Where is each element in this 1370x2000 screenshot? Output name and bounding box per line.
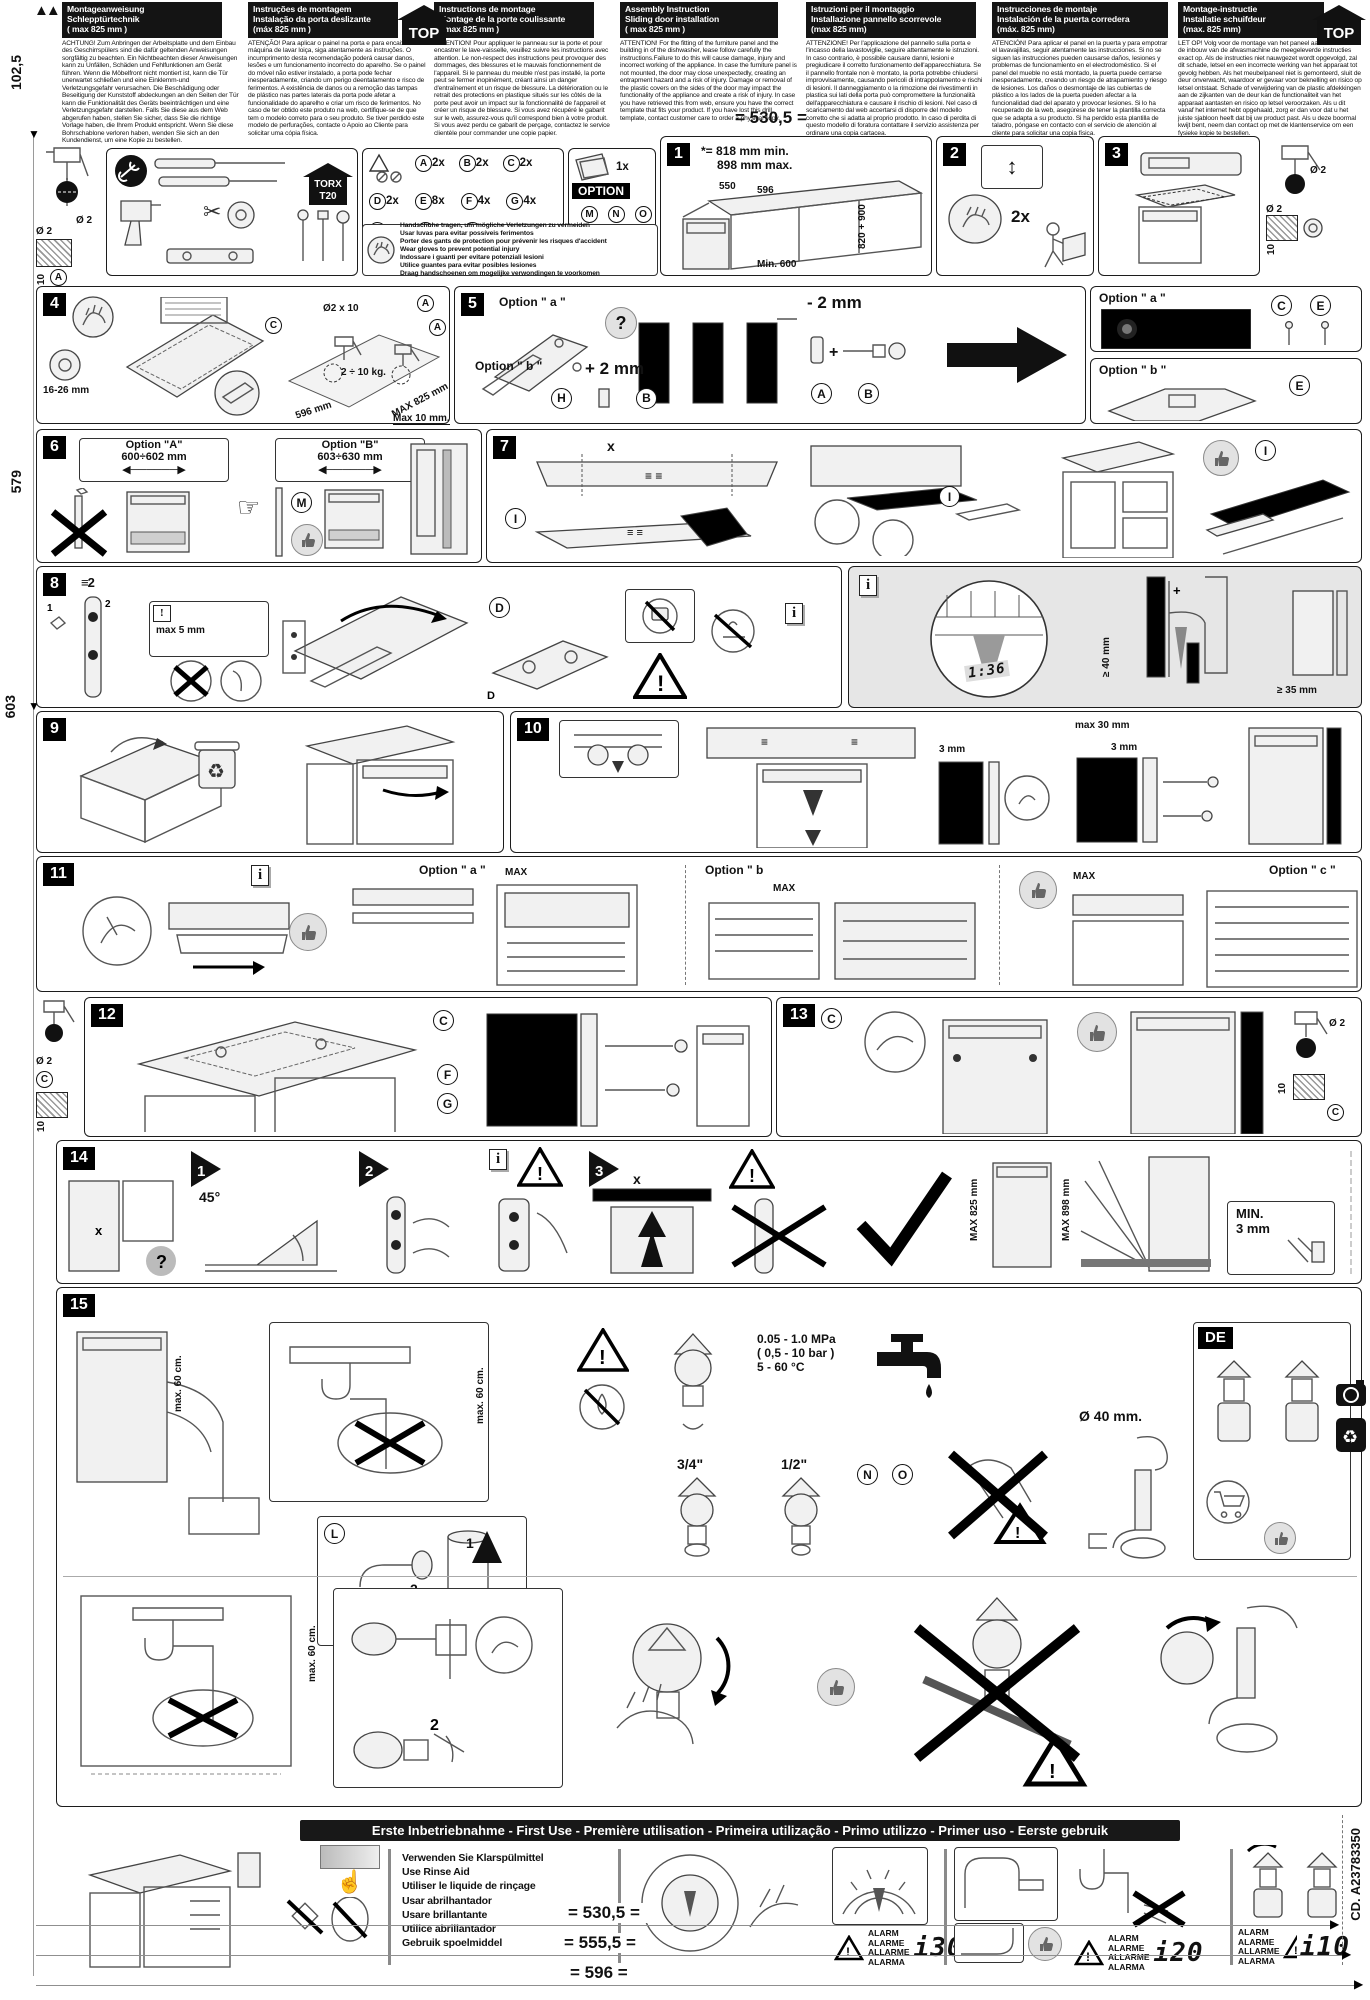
dim-phi2: Ø 2 bbox=[1329, 1018, 1345, 1029]
svg-text:3: 3 bbox=[595, 1163, 603, 1180]
option-b-part: E bbox=[1289, 375, 1310, 396]
hook-screw-illustration bbox=[357, 1193, 477, 1277]
dim-arrow: ▶ bbox=[1330, 1918, 1339, 1930]
part-item-d: D2x bbox=[369, 191, 399, 210]
hand-tap-open bbox=[587, 1598, 807, 1788]
drill-icon bbox=[1285, 1006, 1329, 1064]
tools-illustration: ✂ TORX T20 bbox=[107, 149, 355, 274]
fixing-a2: A bbox=[429, 317, 446, 336]
warning-triangle-icon: ! bbox=[729, 1149, 775, 1189]
aquastop-taps bbox=[1194, 1353, 1344, 1473]
dim-102-5: 102,5 bbox=[8, 55, 24, 90]
under-sink-illustration bbox=[73, 1588, 303, 1788]
door-panel-mounting bbox=[281, 581, 481, 703]
part-letter-f: F bbox=[437, 1064, 458, 1085]
step-number: 15 bbox=[63, 1294, 95, 1317]
divider bbox=[1230, 1849, 1233, 1965]
rails-option-b bbox=[705, 895, 985, 989]
step-number: 6 bbox=[43, 436, 66, 459]
rinse-fill-illustration bbox=[70, 1845, 270, 1973]
svg-text:TOP: TOP bbox=[1324, 25, 1355, 42]
dim-ge40: ≥ 40 mm bbox=[1101, 619, 1112, 677]
part-qty: 2x bbox=[476, 157, 489, 169]
band-divider bbox=[63, 1576, 1357, 1577]
part-letter-i: I bbox=[1255, 440, 1276, 461]
pointing-hand-icon: ☝ bbox=[336, 1869, 380, 1895]
gloves-icon bbox=[71, 295, 115, 339]
part-letter-h: H bbox=[551, 388, 572, 409]
dim-phi2: Ø 2 bbox=[1310, 165, 1366, 176]
step-number: 9 bbox=[43, 718, 66, 741]
svg-text:x: x bbox=[95, 1223, 103, 1238]
dim-plus-2mm: + 2 mm bbox=[585, 359, 644, 379]
substep-3-arrow: 3 bbox=[587, 1149, 621, 1189]
step-8-info-panel: i 1:36 + ≥ 40 mm ≥ 35 mm bbox=[848, 566, 1362, 708]
margin-dims-12: Ø 2 C 10 bbox=[36, 997, 80, 1137]
step-6: 6 Option "A" 600÷602 mm ◀──────▶ Option … bbox=[36, 429, 482, 563]
option-b-label: Option " b bbox=[705, 863, 763, 877]
part-item-c: C2x bbox=[503, 153, 533, 172]
siphon-alarm-panel: ! ALARM ALARME ALLARME ALARMA i20 bbox=[1074, 1845, 1224, 1972]
svg-text:≡: ≡ bbox=[761, 735, 768, 749]
warning-triangle-icon: ! bbox=[577, 1328, 629, 1372]
dim-phi2b: Ø 2 bbox=[1266, 204, 1366, 215]
step-13: 13 C Ø 2 10 C bbox=[776, 997, 1362, 1137]
step-5-option-b-panel: Option " b " E bbox=[1090, 358, 1362, 424]
svg-text:✂: ✂ bbox=[203, 199, 221, 224]
dim-arrow: ▶ bbox=[1354, 1978, 1363, 1990]
wrench-tap-wrong: ! bbox=[877, 1588, 1117, 1788]
panel-sketch bbox=[1285, 587, 1355, 679]
svg-text:1: 1 bbox=[197, 1163, 205, 1180]
bracket-c-callout: C bbox=[433, 1010, 454, 1031]
divider bbox=[999, 865, 1000, 985]
dishwasher-with-panel bbox=[1125, 1006, 1275, 1134]
door-side-strips bbox=[403, 440, 477, 558]
part-l-callout: L bbox=[324, 1523, 345, 1544]
glove-pt: Usar luvas para evitar possíveis ferimen… bbox=[400, 230, 607, 238]
no-solvent-icon bbox=[369, 153, 403, 183]
max-height: 898 mm max. bbox=[717, 158, 792, 172]
strip-m-callout: M bbox=[291, 492, 312, 513]
hand-circle-icon bbox=[947, 193, 1007, 247]
part-letter-l: L bbox=[324, 1523, 345, 1544]
step-number: 10 bbox=[517, 718, 549, 741]
no-sit-icon bbox=[705, 607, 761, 655]
warning-triangle-icon: ! bbox=[633, 653, 687, 699]
step-number: 3 bbox=[1105, 143, 1128, 166]
black-tap-icon bbox=[867, 1322, 947, 1402]
part-letter-c: C bbox=[36, 1071, 53, 1088]
standpipe-illustration bbox=[1077, 1430, 1187, 1560]
dim-max898: MAX 898 mm bbox=[1061, 1171, 1072, 1241]
dim-bottom-596: = 596 = bbox=[562, 1963, 636, 1983]
step-number: 14 bbox=[63, 1147, 95, 1170]
alarm-es: ALARMA bbox=[1238, 1957, 1280, 1967]
min-value: 3 mm bbox=[1236, 1221, 1270, 1236]
svg-text:D: D bbox=[487, 690, 495, 702]
title-line: (max 825 mm) bbox=[811, 25, 971, 35]
thumbs-up-icon bbox=[1019, 871, 1057, 909]
step-number: 2 bbox=[943, 143, 966, 166]
lang-title-pt: Instruções de montagem Instalação da por… bbox=[248, 2, 398, 38]
lang-title-es: Instrucciones de montaje Instalación de … bbox=[992, 2, 1168, 38]
recycle-icon: ♻ bbox=[1336, 1418, 1366, 1452]
info-icon: i bbox=[251, 865, 269, 886]
info-icon: i bbox=[785, 603, 803, 624]
alarm-words: ALARM ALARME ALLARME ALARMA bbox=[1108, 1934, 1150, 1972]
no-plug-panel bbox=[625, 589, 695, 643]
option-a-parts: C E bbox=[1271, 295, 1331, 316]
panel-grain bbox=[1101, 309, 1251, 349]
body-text-pt: ATENÇÃO! Para aplicar o painel na porta … bbox=[248, 40, 426, 138]
alarm-words: ALARM ALARME ALLARME ALARMA bbox=[868, 1929, 910, 1967]
warning-triangle-icon: ! bbox=[1074, 1940, 1104, 1966]
part-letter-m: M bbox=[291, 492, 312, 513]
template-taping-illustration bbox=[117, 297, 267, 417]
dim-phi2: Ø 2 bbox=[76, 215, 102, 226]
alarm-es: ALARMA bbox=[868, 1958, 910, 1968]
option-c-label: Option " c " bbox=[1269, 863, 1336, 877]
lang-title-de: Montageanweisung Schlepptürtechnik ( max… bbox=[62, 2, 222, 38]
bracket-diagram bbox=[1105, 381, 1265, 421]
template-on-top-illustration bbox=[1127, 147, 1253, 267]
dim-603: 603 bbox=[2, 695, 18, 718]
error-code-i20: i20 bbox=[1154, 1938, 1204, 1968]
lang-title-en: Assembly Instruction Sliding door instal… bbox=[620, 2, 778, 38]
part-qty: 4x bbox=[523, 195, 536, 207]
part-letter: O bbox=[635, 206, 652, 223]
glove-nl: Draag handschoenen om mogelijke verwondi… bbox=[400, 270, 607, 278]
lang-col-it: Istruzioni per il montaggio Installazion… bbox=[806, 2, 984, 137]
part-letter-c: C bbox=[265, 317, 282, 334]
warning-i: ! bbox=[153, 605, 171, 622]
svg-text:!: ! bbox=[657, 671, 664, 696]
lang-col-en: Assembly Instruction Sliding door instal… bbox=[620, 2, 798, 122]
dim-bottom-530-5: = 530,5 = bbox=[560, 1903, 648, 1923]
pressure-mpa: 0.05 - 1.0 MPa bbox=[757, 1332, 836, 1346]
door-open-illustration bbox=[1079, 1151, 1219, 1277]
lang-col-fr: Instructions de montage Montage de la po… bbox=[434, 2, 612, 137]
svg-text:TOP: TOP bbox=[409, 25, 440, 42]
cart-icon bbox=[1202, 1478, 1258, 1528]
svg-text:1: 1 bbox=[47, 603, 53, 614]
divider bbox=[944, 1849, 947, 1965]
option-B-label: Option "B" bbox=[276, 439, 424, 451]
wrong-hook-detail bbox=[161, 659, 271, 703]
dishwasher-side-view bbox=[1241, 722, 1351, 848]
thumbs-up-icon bbox=[291, 524, 323, 556]
step-number: 12 bbox=[91, 1004, 123, 1027]
dim-596: 596 bbox=[757, 185, 774, 196]
final-tap-open bbox=[1147, 1598, 1347, 1788]
part-letter: C bbox=[503, 155, 520, 172]
lang-title-it: Istruzioni per il montaggio Installazion… bbox=[806, 2, 976, 38]
step-15: 15 max. 60 cm. max. 60 cm. L 1 bbox=[56, 1287, 1362, 1807]
glove-warning-lines: Handschuhe tragen, um mögliche Verletzun… bbox=[400, 222, 607, 277]
de-panel: DE bbox=[1193, 1322, 1351, 1560]
door-fixing-detail: D bbox=[485, 623, 615, 703]
step1-height-note: *= 818 mm min. 898 mm max. bbox=[701, 144, 792, 172]
part-letter-c: C bbox=[1327, 1104, 1344, 1121]
sink-panel bbox=[269, 1322, 489, 1502]
svg-text:2: 2 bbox=[430, 1717, 439, 1734]
dim-bottom-555-5: = 555,5 = bbox=[556, 1933, 644, 1953]
option-a-label: Option " a " bbox=[499, 295, 566, 309]
part-item-a: A2x bbox=[415, 153, 445, 172]
option-label: OPTION bbox=[572, 183, 630, 199]
step-10: 10 ≡≡ 3 mm max 30 mm 3 mm bbox=[510, 711, 1362, 853]
dim-579: 579 bbox=[8, 470, 24, 493]
wall-section bbox=[1266, 215, 1298, 241]
drill-icon bbox=[36, 997, 76, 1051]
body-text-it: ATTENZIONE! Per l'applicazione del panne… bbox=[806, 40, 984, 138]
recycle-bin-icon: ♻ bbox=[187, 730, 247, 792]
part-letter-c: C bbox=[433, 1010, 454, 1031]
part-letter-e: E bbox=[1310, 295, 1331, 316]
screw-gap-detail bbox=[1067, 752, 1227, 848]
wrong-mount-illustration bbox=[725, 1195, 835, 1277]
svg-text:?: ? bbox=[156, 1252, 167, 1272]
part-item-b: B2x bbox=[459, 153, 489, 172]
svg-text:!: ! bbox=[537, 1164, 543, 1184]
dishwasher-front bbox=[123, 488, 193, 558]
dim-10: 10 bbox=[36, 271, 47, 285]
title-line: (máx. 825 mm) bbox=[997, 25, 1163, 35]
hinge-gap-detail bbox=[1228, 1236, 1328, 1266]
dim-max60b: max. 60 cm. bbox=[475, 1358, 486, 1424]
part-letter-a: A bbox=[429, 319, 446, 336]
shim-icon bbox=[596, 387, 612, 409]
max-label-c: MAX bbox=[1073, 871, 1095, 882]
no-drip-icon bbox=[577, 1382, 627, 1432]
tap-alarm-panel: ALARM ALARME ALLARME ALARMA ! i10 bbox=[1238, 1845, 1350, 1966]
bracket-c: C bbox=[265, 315, 282, 334]
dial-zoom bbox=[833, 1848, 925, 1922]
dim-max60c: max. 60 cm. bbox=[307, 1618, 318, 1682]
glove-es: Utilice guantes para evitar posibles les… bbox=[400, 262, 607, 270]
rinse-line-de: Verwenden Sie Klarspülmittel bbox=[402, 1851, 543, 1865]
max-label-b: MAX bbox=[773, 883, 795, 894]
rinse-line-pt: Usar abrilhantador bbox=[402, 1894, 543, 1908]
hook-count: ≡2 bbox=[81, 575, 95, 590]
part-qty: 4x bbox=[478, 195, 491, 207]
svg-text:!: ! bbox=[1015, 1525, 1020, 1542]
substep-1: 1 bbox=[466, 1535, 474, 1551]
part-letter-c: C bbox=[1271, 295, 1292, 316]
part-letter-b: B bbox=[858, 383, 879, 404]
rinse-line-nl: Gebruik spoelmiddel bbox=[402, 1936, 543, 1950]
thumbs-up-icon bbox=[817, 1668, 855, 1706]
check-illustration bbox=[847, 1161, 957, 1271]
substep-2-arrow: 2 bbox=[357, 1149, 391, 1189]
clamp-screw-2: 2 bbox=[334, 1714, 558, 1786]
top-orientation-icon: TOP bbox=[1312, 5, 1366, 45]
dim-phi2b: Ø 2 bbox=[36, 226, 102, 237]
carry-person-illustration bbox=[1033, 221, 1087, 271]
option-b-parts: H B bbox=[551, 387, 657, 409]
svg-text:2: 2 bbox=[105, 599, 111, 610]
lang-title-fr: Instructions de montage Montage de la po… bbox=[434, 2, 594, 38]
step-9: 9 ♻ bbox=[36, 711, 504, 853]
dim-max5: max 5 mm bbox=[156, 625, 268, 636]
step-4: 4 16-26 mm C Ø2 x 10 2 ÷ 10 kg. 596 mm M… bbox=[36, 286, 450, 424]
dim-3-4: 3/4" bbox=[677, 1456, 703, 1472]
svg-text:!: ! bbox=[599, 1347, 606, 1369]
left-dimension-line bbox=[33, 136, 34, 1976]
option-A-box: Option "A" 600÷602 mm ◀──────▶ bbox=[79, 438, 229, 482]
rinse-line-fr: Utiliser le liquide de rinçage bbox=[402, 1879, 543, 1893]
svg-text:2: 2 bbox=[365, 1163, 373, 1180]
step-5-option-a-panel: Option " a " C E bbox=[1090, 286, 1362, 352]
tap-illustration bbox=[653, 1328, 743, 1438]
rails-option-a bbox=[347, 879, 647, 989]
strip-m bbox=[273, 486, 289, 558]
part-item-f: F4x bbox=[461, 191, 491, 210]
svg-text:!: ! bbox=[1049, 1761, 1056, 1783]
svg-text:≡ ≡: ≡ ≡ bbox=[627, 527, 643, 539]
range-arrows: ◀──────▶ bbox=[276, 463, 424, 476]
tap-34 bbox=[657, 1474, 737, 1564]
wall-section bbox=[36, 1092, 68, 1118]
cabinet-iso-strip bbox=[1043, 438, 1193, 558]
dial-zoom-panel bbox=[832, 1847, 928, 1925]
updown-arrow-icon: ↕ bbox=[1007, 154, 1018, 180]
part-letter-i: I bbox=[939, 486, 960, 507]
kitchen-iso-illustration bbox=[669, 173, 925, 273]
body-text-fr: ATTENTION! Pour appliquer le panneau sur… bbox=[434, 40, 612, 138]
option-A-range: 600÷602 mm bbox=[80, 451, 228, 463]
alarm-words: ALARM ALARME ALLARME ALARMA bbox=[1238, 1928, 1280, 1966]
step-number: 7 bbox=[493, 436, 516, 459]
step-14: 14 ? x 1 45° 2 i ! 3 x ! MAX 825 mm MAX … bbox=[56, 1140, 1362, 1284]
camera-icon bbox=[1336, 1380, 1366, 1410]
dim-3mm-a: 3 mm bbox=[939, 744, 965, 755]
wall-section bbox=[36, 239, 72, 267]
part-a-circle: A bbox=[50, 269, 67, 286]
svg-text:T20: T20 bbox=[319, 191, 337, 202]
strip-i-callout2: I bbox=[939, 486, 960, 507]
divider bbox=[685, 865, 686, 985]
first-use-bar: Erste Inbetriebnahme - First Use - Premi… bbox=[300, 1820, 1180, 1841]
strip-i-callout: I bbox=[505, 508, 526, 529]
dim-550: 550 bbox=[719, 181, 736, 192]
left-arrow-marker: ▼ bbox=[28, 128, 40, 140]
glove-warning-box: Handschuhe tragen, um mögliche Verletzun… bbox=[362, 224, 658, 276]
registration-arrows-icon: ▲▲ bbox=[34, 2, 58, 19]
hose-loop-box bbox=[954, 1847, 1058, 1921]
glove-de: Handschuhe tragen, um mögliche Verletzun… bbox=[400, 222, 607, 230]
part-letter-g: G bbox=[437, 1093, 458, 1114]
booklet-qty: 1x bbox=[616, 161, 629, 173]
edge-cross-section: + bbox=[1117, 573, 1277, 705]
dim-max10: Max 10 mm. bbox=[393, 413, 450, 425]
screw-pair-icon bbox=[1277, 321, 1347, 347]
part-letter-d: D bbox=[489, 597, 510, 618]
bracket-c-callout2: C bbox=[1327, 1102, 1344, 1121]
worktop-template-illustration bbox=[125, 1008, 425, 1132]
wall-fixing-detail bbox=[477, 1006, 757, 1134]
substep-1-arrow: 1 bbox=[189, 1149, 223, 1189]
step-number: 4 bbox=[43, 293, 66, 316]
part-qty: 2x bbox=[432, 157, 445, 169]
strip-under-counter bbox=[807, 444, 1027, 556]
svg-text:+: + bbox=[1173, 583, 1181, 598]
step-12: 12 C F G bbox=[84, 997, 772, 1137]
drill-icon bbox=[36, 140, 102, 210]
body-text-de: ACHTUNG! Zum Anbringen der Arbeitsplatte… bbox=[62, 40, 240, 145]
title-line: ( max 825 mm ) bbox=[625, 25, 773, 35]
glove-en: Wear gloves to prevent potential injury bbox=[400, 246, 607, 254]
dim-line-596 bbox=[36, 1985, 1356, 1986]
hose-to-trap bbox=[334, 1589, 558, 1709]
step-number: 1 bbox=[667, 143, 690, 166]
step-number: 13 bbox=[783, 1004, 815, 1027]
svg-text:≡ ≡: ≡ ≡ bbox=[645, 469, 662, 483]
hinge-d-callout: D bbox=[489, 597, 510, 618]
part-letter: N bbox=[608, 206, 625, 223]
option-a-label: Option " a " bbox=[1099, 291, 1166, 305]
pressure-bar: ( 0,5 - 10 bar ) bbox=[757, 1346, 836, 1360]
title-line: ( max 825 mm ) bbox=[439, 25, 589, 35]
svg-text:TORX: TORX bbox=[314, 179, 342, 190]
part-qty: 8x bbox=[432, 195, 445, 207]
part-letter-c: C bbox=[821, 1008, 842, 1029]
body-text-es: ATENCIÓN! Para aplicar el panel en la pu… bbox=[992, 40, 1170, 138]
info-icon: i bbox=[489, 1149, 507, 1170]
instruction-sheet: ▲▲ 102,5 579 603 ▼ ▼ Montageanweisung Sc… bbox=[0, 0, 1370, 2000]
strip-i-callout3: I bbox=[1255, 440, 1276, 461]
tools-box: ✂ TORX T20 bbox=[106, 148, 358, 276]
dim-10: 10 bbox=[1266, 241, 1277, 255]
fastener-diagram: + bbox=[807, 321, 917, 381]
dim-10: 10 bbox=[36, 1118, 47, 1132]
alarm-i20: ! ALARM ALARME ALLARME ALARMA i20 bbox=[1074, 1934, 1224, 1972]
step-1: 1 *= 818 mm min. 898 mm max. 550 596 820… bbox=[660, 136, 932, 276]
part-letter-o: O bbox=[892, 1464, 913, 1485]
part-letter: E bbox=[415, 193, 432, 210]
hose-loop bbox=[955, 1848, 1055, 1918]
svg-text:+: + bbox=[829, 344, 838, 361]
range-arrows: ◀──────▶ bbox=[80, 463, 228, 476]
cabinet-align-illustration: ≡≡ bbox=[701, 720, 921, 848]
sink-trap-illustration bbox=[270, 1323, 484, 1497]
panel-holding-illustration bbox=[489, 1193, 579, 1277]
step-11: 11 i Option " a " MAX Option " b MAX Opt… bbox=[36, 856, 1362, 992]
panel-up-illustration bbox=[587, 1185, 717, 1277]
part-qty: 2x bbox=[386, 195, 399, 207]
lang-col-de: Montageanweisung Schlepptürtechnik ( max… bbox=[62, 2, 240, 145]
panel-gap-illustration bbox=[931, 758, 1061, 848]
dim-ge35: ≥ 35 mm bbox=[1277, 685, 1317, 696]
option-b-label: Option " b " bbox=[475, 359, 542, 373]
temp-range: 5 - 60 °C bbox=[757, 1360, 836, 1374]
screw-callouts: F G bbox=[437, 1064, 458, 1114]
document-code: CD. A23783350 bbox=[1348, 1828, 1363, 1921]
booklet-icon bbox=[572, 152, 612, 182]
info-icon: i bbox=[859, 575, 877, 596]
side-fixing-illustration bbox=[847, 1006, 1057, 1134]
qty-2x: 2x bbox=[1011, 207, 1030, 227]
dim-max30: max 30 mm bbox=[1075, 720, 1129, 731]
drill-detail-left: Ø 2 Ø 2 10A bbox=[36, 140, 102, 280]
svg-text:♻: ♻ bbox=[207, 761, 225, 783]
dim-45deg: 45° bbox=[199, 1189, 220, 1205]
step-2: 2 ↕ 2x bbox=[936, 136, 1094, 276]
option-b-label: Option " b " bbox=[1099, 363, 1166, 377]
basket-option-c bbox=[1067, 887, 1367, 989]
part-letter: A bbox=[415, 155, 432, 172]
